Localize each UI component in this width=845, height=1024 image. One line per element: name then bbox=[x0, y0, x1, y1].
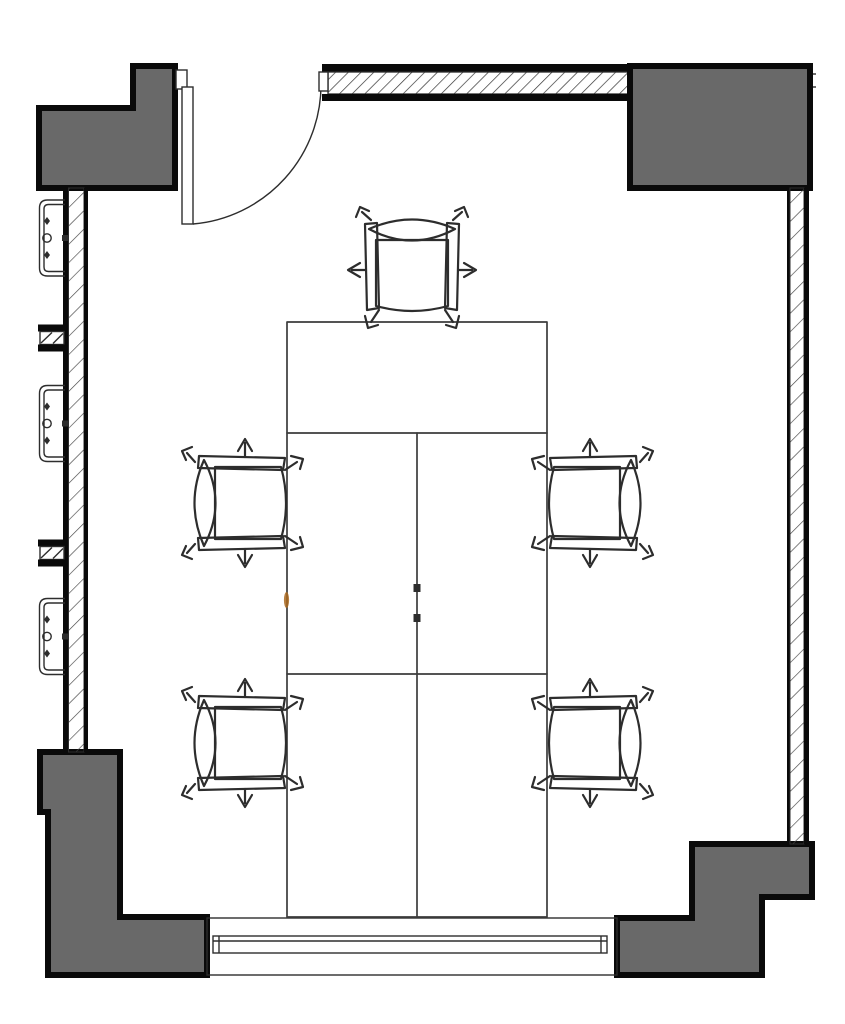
wall-left-exterior-line bbox=[63, 188, 69, 752]
floor-plan bbox=[0, 0, 845, 1024]
door-stop bbox=[319, 72, 328, 91]
wall-right-exterior-line bbox=[804, 188, 809, 844]
window-glazing bbox=[213, 936, 607, 953]
wall-top-interior-line bbox=[322, 94, 632, 101]
chair-right-lower bbox=[532, 679, 653, 807]
door-leaf bbox=[182, 87, 193, 224]
table-grommet bbox=[414, 614, 421, 622]
chair-right-upper bbox=[532, 439, 653, 567]
column-bottom-left bbox=[40, 752, 207, 975]
door-frame bbox=[176, 70, 187, 89]
column-top-left bbox=[39, 66, 175, 188]
wall-top-hatch bbox=[328, 72, 628, 94]
chair-top bbox=[348, 207, 476, 328]
wall-left-hatch bbox=[69, 188, 85, 752]
wall-right-hatch bbox=[790, 188, 804, 844]
wall-left bbox=[38, 188, 88, 752]
wall-pier bbox=[38, 325, 66, 352]
column-bottom-right bbox=[617, 844, 812, 975]
door bbox=[176, 70, 328, 224]
conference-table bbox=[284, 322, 547, 917]
chair-left-upper bbox=[182, 439, 303, 567]
table-grommet bbox=[414, 584, 421, 592]
wall-pier bbox=[38, 540, 66, 567]
table-edge-mark bbox=[284, 592, 289, 608]
window-outer-frame bbox=[207, 918, 617, 975]
wall-right bbox=[787, 188, 809, 844]
column-top-right bbox=[630, 66, 810, 188]
window-band bbox=[207, 918, 617, 975]
door-swing-arc bbox=[193, 82, 321, 224]
wall-left-interior-line bbox=[84, 188, 88, 752]
chair-left-lower bbox=[182, 679, 303, 807]
